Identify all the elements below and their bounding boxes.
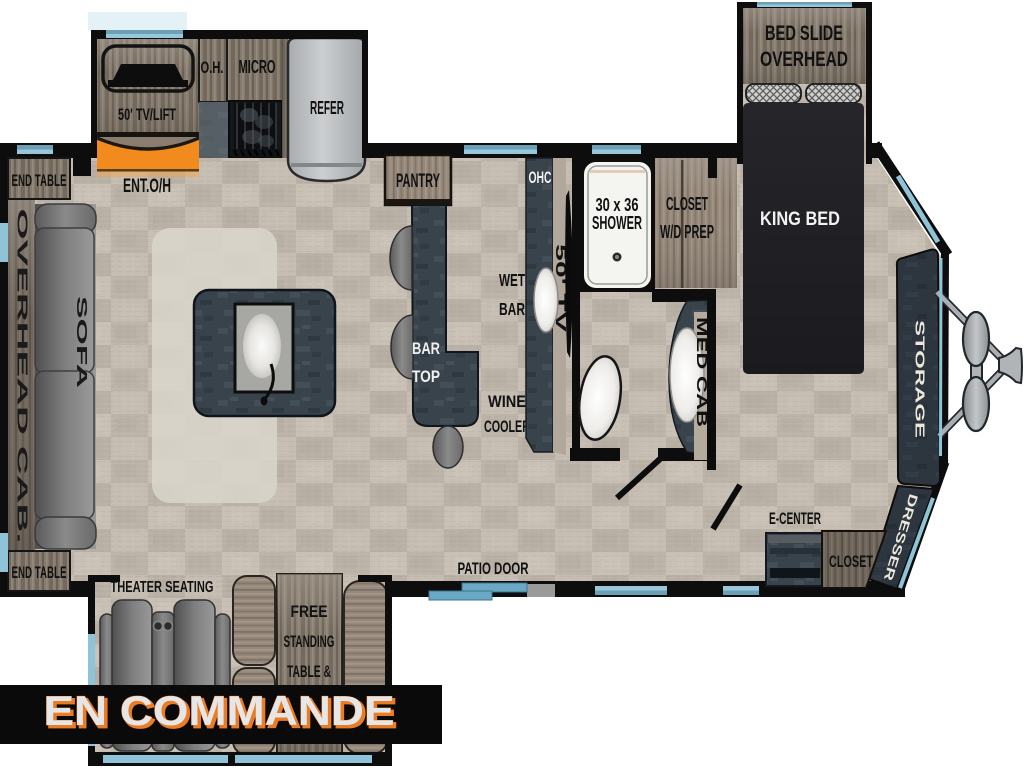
svg-text:MED CAB: MED CAB (693, 317, 709, 427)
svg-text:CLOSET: CLOSET (666, 194, 708, 214)
svg-text:W/D PREP: W/D PREP (660, 222, 714, 242)
svg-text:BAR: BAR (499, 299, 525, 319)
svg-text:THEATER SEATING: THEATER SEATING (111, 579, 214, 596)
svg-text:WET: WET (499, 270, 525, 290)
svg-text:STORAGE: STORAGE (913, 320, 927, 438)
svg-text:30 x 36: 30 x 36 (596, 195, 639, 215)
svg-text:CLOSET: CLOSET (829, 552, 873, 571)
svg-text:E-CENTER: E-CENTER (769, 509, 821, 528)
svg-text:END TABLE: END TABLE (12, 172, 67, 190)
svg-text:END TABLE: END TABLE (12, 564, 67, 582)
svg-text:MICRO: MICRO (239, 57, 276, 77)
svg-text:TABLE &: TABLE & (287, 662, 331, 681)
svg-text:SHOWER: SHOWER (592, 213, 642, 233)
svg-text:FREE: FREE (291, 602, 328, 621)
svg-text:50' TV/LIFT: 50' TV/LIFT (118, 105, 176, 124)
svg-text:OVERHEAD: OVERHEAD (760, 48, 848, 71)
svg-text:PATIO DOOR: PATIO DOOR (458, 560, 529, 578)
svg-text:BAR: BAR (412, 340, 440, 358)
svg-text:TOP: TOP (412, 368, 440, 386)
svg-text:REFER: REFER (310, 98, 344, 118)
svg-text:EN COMMANDE: EN COMMANDE (44, 687, 395, 734)
svg-text:STANDING: STANDING (284, 632, 335, 651)
svg-text:O.H.: O.H. (201, 58, 224, 77)
svg-text:SOFA: SOFA (73, 296, 90, 388)
svg-text:ENT.O/H: ENT.O/H (123, 176, 171, 197)
svg-text:OHC: OHC (529, 169, 552, 187)
svg-text:PANTRY: PANTRY (396, 170, 440, 192)
svg-text:COOLER: COOLER (484, 417, 530, 436)
svg-text:OVERHEAD CAB.: OVERHEAD CAB. (14, 209, 31, 544)
svg-text:KING BED: KING BED (760, 209, 840, 230)
svg-text:BED SLIDE: BED SLIDE (765, 22, 843, 45)
svg-text:WINE: WINE (488, 392, 526, 411)
